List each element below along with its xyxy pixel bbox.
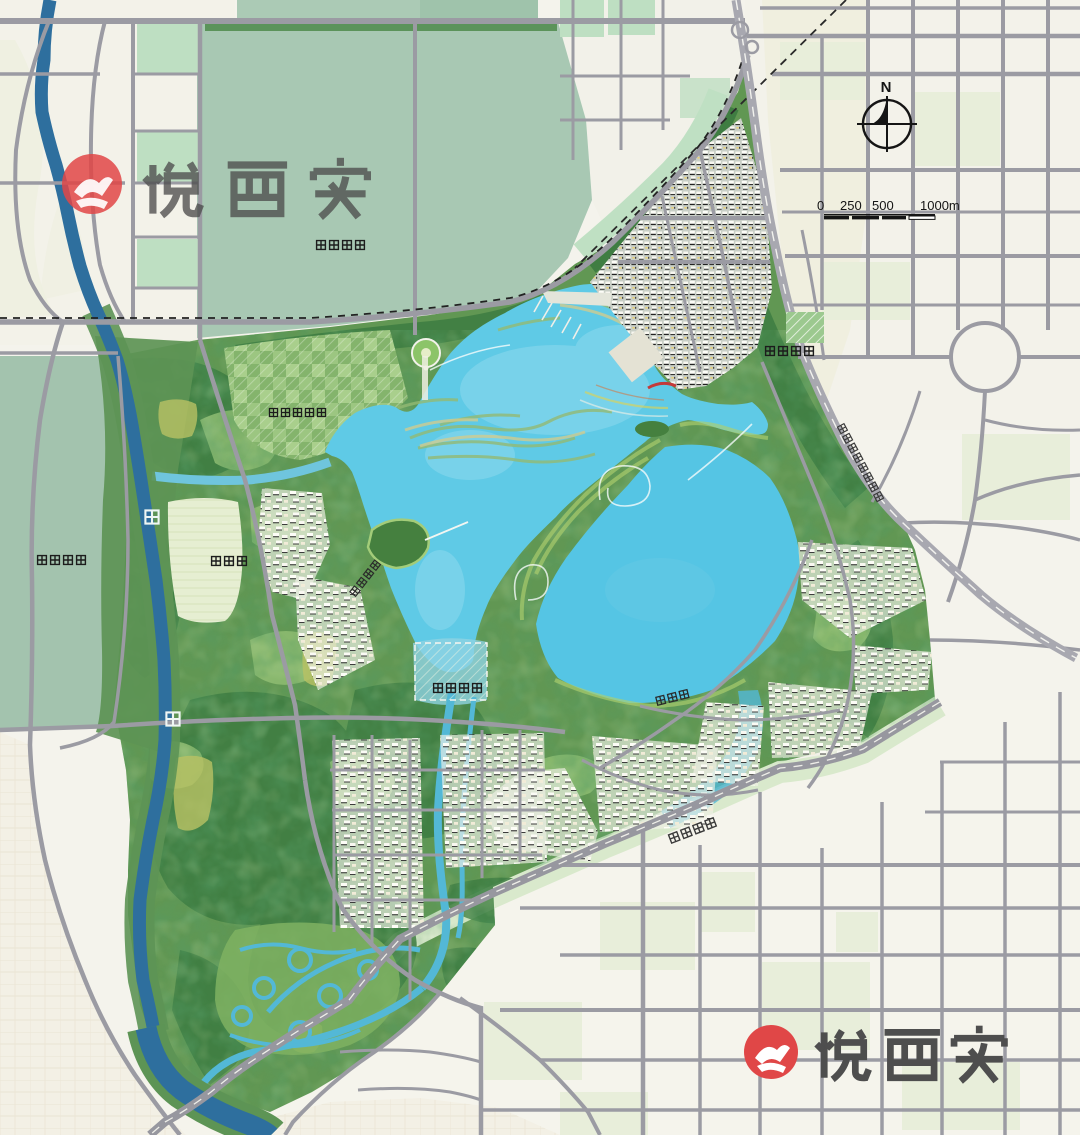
svg-text:1000m: 1000m (920, 198, 960, 213)
svg-text:N: N (881, 79, 892, 96)
svg-text:500: 500 (872, 198, 894, 213)
svg-text:250: 250 (840, 198, 862, 213)
svg-text:0: 0 (817, 198, 824, 213)
